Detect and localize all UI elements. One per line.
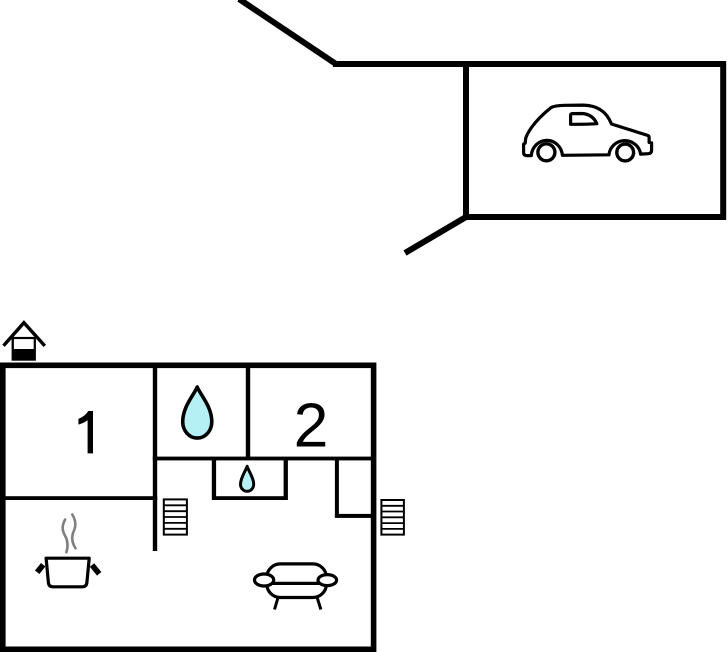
svg-text:2: 2 <box>294 390 329 460</box>
